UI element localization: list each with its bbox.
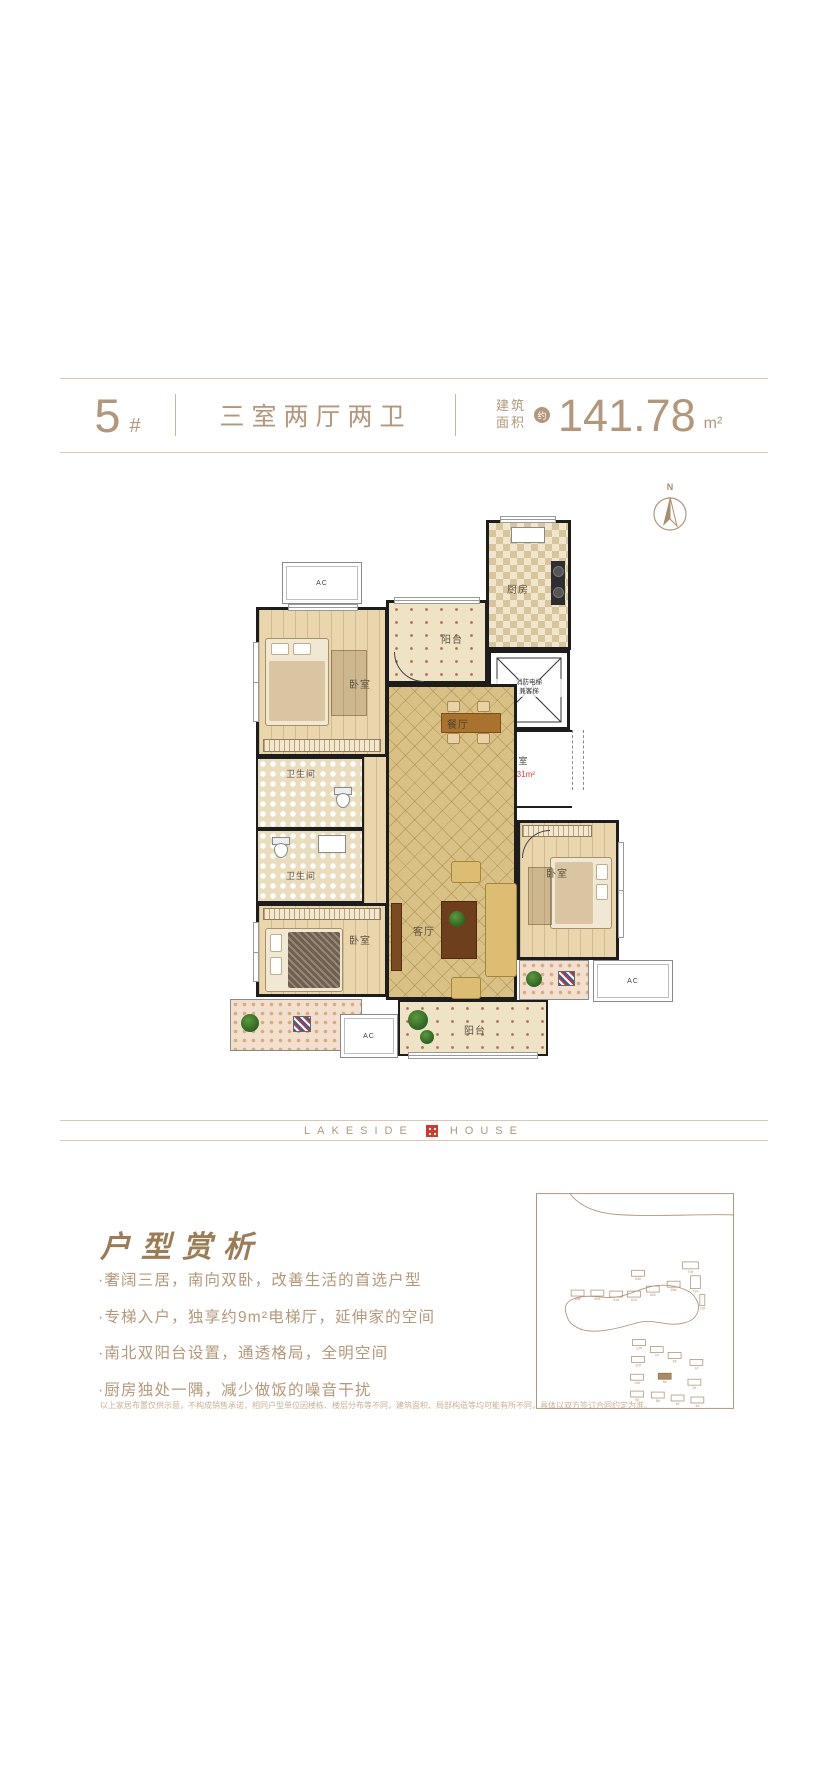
building-number: 5 #	[60, 392, 175, 439]
bed-pillow	[270, 934, 282, 952]
site-lake-outline	[565, 1285, 698, 1331]
ac-platform-top-label: AC	[316, 580, 328, 587]
building-number-hash: #	[130, 415, 141, 438]
room-balcony-south: 阳台	[398, 1000, 548, 1056]
ac-platform-bottom: AC	[340, 1014, 398, 1058]
bed-pillow	[596, 864, 608, 880]
ac-platform-right: AC	[593, 960, 673, 1002]
kitchen-label: 厨房	[507, 581, 529, 596]
bedroom-northwest-label: 卧室	[349, 676, 371, 691]
wardrobe	[263, 908, 381, 920]
lounge-item	[293, 1016, 311, 1032]
site-building	[671, 1395, 684, 1401]
site-building-label: 51#	[613, 1298, 619, 1302]
bed	[265, 928, 343, 992]
room-bathroom-2: 卫生间	[256, 829, 364, 903]
site-map-buildings: 64#70#30#60#51#61#62#65#71#72#12#7#6#11#…	[571, 1262, 705, 1408]
dining-label: 餐厅	[447, 716, 469, 731]
bathroom-1-label: 卫生间	[286, 767, 316, 780]
site-building	[688, 1379, 701, 1385]
site-building	[632, 1270, 645, 1276]
site-building	[691, 1397, 704, 1403]
window	[618, 842, 624, 938]
window	[500, 516, 556, 523]
analysis-bullet-3: ·南北双阳台设置，通透格局，全明空间	[98, 1341, 458, 1363]
site-building-label: 10#	[634, 1381, 640, 1385]
site-building	[571, 1290, 584, 1296]
bedroom-southwest-label: 卧室	[349, 932, 371, 947]
site-building-label: 3#	[695, 1404, 699, 1408]
toilet-bowl	[336, 793, 350, 808]
window	[394, 597, 480, 604]
dining-chair	[447, 701, 460, 712]
tv-cabinet	[391, 903, 402, 971]
site-building	[633, 1340, 646, 1346]
area-label-top: 建筑	[496, 398, 526, 415]
balcony-south-label: 阳台	[464, 1022, 486, 1037]
site-building	[700, 1295, 705, 1306]
corridor-dashed-boundary	[572, 730, 584, 790]
site-building-label: 6#	[673, 1359, 677, 1363]
site-building-label: 4#	[676, 1402, 680, 1406]
compass-north-label: N	[648, 482, 692, 492]
stove-burner	[553, 566, 564, 577]
analysis-bullet-1: ·奢阔三居，南向双卧，改善生活的首选户型	[98, 1268, 458, 1290]
site-building-label: 8#	[656, 1399, 660, 1403]
site-building-label: 2#	[692, 1386, 696, 1390]
site-building	[690, 1359, 703, 1365]
approx-badge: 约	[534, 407, 550, 423]
site-building-label: 30#	[575, 1297, 581, 1301]
area-value: 141.78	[558, 393, 696, 438]
site-building	[651, 1392, 664, 1398]
brand-word-right: HOUSE	[450, 1125, 524, 1137]
ac-platform-bottom-label: AC	[363, 1033, 375, 1040]
window	[253, 642, 259, 722]
balcony-north-label: 阳台	[441, 631, 463, 646]
ac-platform-right-label: AC	[627, 978, 639, 985]
site-building-label: 12#	[636, 1347, 642, 1351]
bed-pillow	[293, 643, 311, 655]
site-building	[690, 1276, 700, 1289]
site-building-label: 71#	[692, 1290, 698, 1294]
analysis-bullet-4: ·厨房独处一隅，减少做饭的噪音干扰	[98, 1378, 458, 1400]
ac-platform-top: AC	[282, 562, 362, 604]
dining-chair	[477, 701, 490, 712]
analysis-title: 户型赏析	[100, 1222, 264, 1266]
site-building-label: 5#	[663, 1380, 667, 1384]
sofa-armchair	[451, 861, 481, 883]
room-kitchen: 厨房	[486, 520, 571, 650]
site-building	[650, 1347, 663, 1353]
bed-blanket	[269, 661, 325, 721]
wardrobe	[263, 739, 381, 752]
area-label: 建筑 面积	[496, 398, 526, 432]
site-map-svg: 64#70#30#60#51#61#62#65#71#72#12#7#6#11#…	[536, 1193, 734, 1409]
room-living-dining: 餐厅 客厅	[386, 684, 517, 1000]
bed-pillow	[596, 884, 608, 900]
site-building-label: 60#	[594, 1297, 600, 1301]
analysis-bullets: ·奢阔三居，南向双卧，改善生活的首选户型 ·专梯入户，独享约9m²电梯厅，延伸家…	[98, 1268, 458, 1414]
sofa-main	[485, 883, 517, 977]
room-bedroom-southwest: 卧室	[256, 903, 388, 997]
site-building	[683, 1262, 699, 1269]
coffee-table	[441, 901, 477, 959]
site-building-label: 61#	[631, 1298, 637, 1302]
living-label: 客厅	[413, 923, 435, 938]
brand-band: LAKESIDE HOUSE	[60, 1120, 768, 1141]
site-building-label: 72#	[699, 1306, 705, 1310]
bed-pillow	[270, 957, 282, 975]
site-building-label: 62#	[650, 1293, 656, 1297]
brand-seal-icon	[426, 1125, 438, 1137]
area-unit: m²	[704, 415, 723, 438]
site-building-label: 7#	[655, 1353, 659, 1357]
room-bedroom-northwest: 卧室	[256, 607, 388, 757]
kitchen-sink	[511, 527, 545, 543]
site-building-label: 9#	[635, 1398, 639, 1402]
site-building	[631, 1391, 644, 1397]
flower-box-east	[519, 960, 589, 1000]
header-top-rule	[60, 378, 768, 379]
dining-chair	[447, 733, 460, 744]
dining-chair	[477, 733, 490, 744]
window	[408, 1052, 538, 1059]
site-building-label: 11#	[635, 1363, 641, 1367]
site-building	[631, 1374, 644, 1380]
hallway	[364, 757, 386, 903]
window	[288, 604, 358, 611]
site-building-label: 70#	[687, 1270, 693, 1274]
brand-word-left: LAKESIDE	[304, 1125, 414, 1137]
site-building	[632, 1356, 645, 1362]
bed-blanket	[288, 932, 340, 988]
toilet-bowl	[274, 843, 288, 858]
plant	[420, 1030, 434, 1044]
window	[253, 922, 259, 982]
site-boundary-road	[570, 1193, 733, 1215]
site-building-label: 64#	[635, 1277, 641, 1281]
header-bottom-rule	[60, 452, 768, 453]
area-label-bottom: 面积	[496, 415, 526, 432]
toilet	[272, 837, 288, 857]
sofa-armchair	[451, 977, 481, 999]
site-building	[668, 1352, 681, 1358]
plant	[241, 1014, 259, 1032]
lounge-item	[558, 971, 575, 986]
site-building	[591, 1290, 604, 1296]
site-map: 64#70#30#60#51#61#62#65#71#72#12#7#6#11#…	[536, 1193, 734, 1414]
bedroom-east-label: 卧室	[546, 865, 568, 880]
stove-burner	[553, 587, 564, 598]
bathroom-sink	[318, 835, 346, 853]
plant	[408, 1010, 428, 1030]
plant	[526, 971, 542, 987]
bed-pillow	[271, 643, 289, 655]
header: 5 # 三室两厅两卫 建筑 面积 约 141.78 m²	[60, 384, 768, 446]
bed	[265, 638, 329, 726]
analysis-bullet-2: ·专梯入户，独享约9m²电梯厅，延伸家的空间	[98, 1305, 458, 1327]
kitchen-stove	[551, 561, 565, 605]
bathroom-2-label: 卫生间	[286, 869, 316, 882]
plant	[449, 911, 465, 927]
site-building	[658, 1373, 671, 1379]
toilet	[334, 787, 350, 807]
room-bathroom-1: 卫生间	[256, 757, 364, 829]
site-building-label: 65#	[671, 1288, 677, 1292]
building-number-value: 5	[94, 392, 120, 439]
layout-name: 三室两厅两卫	[176, 397, 455, 433]
site-building-label: 1#	[694, 1366, 698, 1370]
floor-plan: AC 卧室 阳台 厨房 消防电梯 兼客	[228, 512, 722, 1064]
area-block: 建筑 面积 约 141.78 m²	[456, 393, 768, 438]
